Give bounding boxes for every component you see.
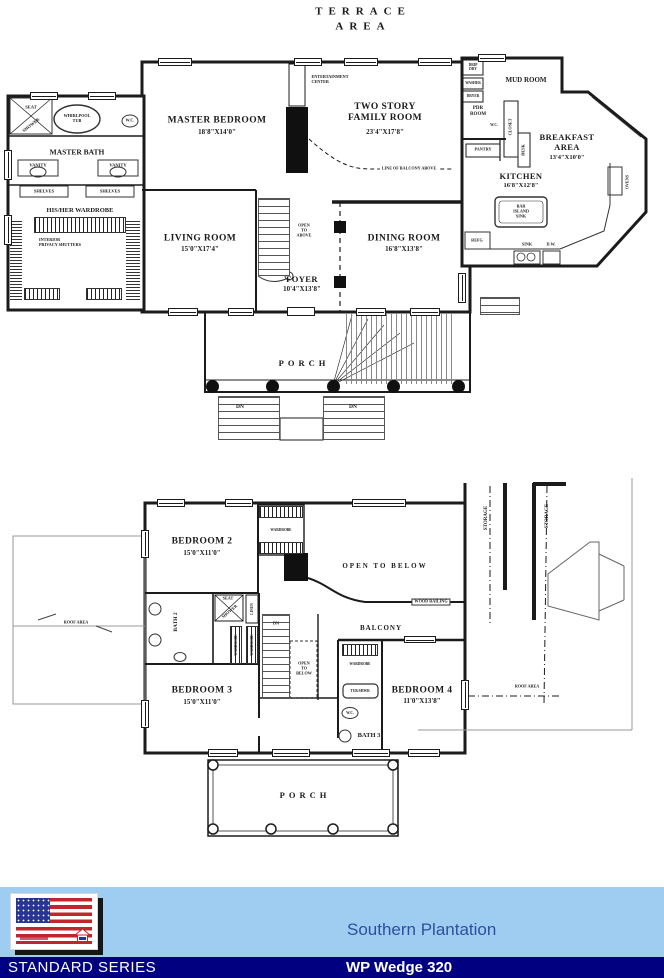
floor-plan-sheet: TERRACE AREA — [0, 0, 664, 978]
label-vanity-right: VANITY — [109, 162, 126, 167]
label-entertainment-center: ENTERTAINMENT CENTER — [311, 75, 348, 85]
window — [410, 308, 440, 316]
label-mud-room: MUD ROOM — [505, 76, 546, 84]
label-drip-dry: DRIP DRY — [469, 63, 478, 71]
window — [272, 749, 310, 757]
second-floor-walls — [0, 468, 664, 878]
label-line-of-balcony: LINE OF BALCONY ABOVE — [380, 167, 438, 172]
label-wc-pdr: W.C. — [490, 123, 498, 127]
staircase-up — [258, 198, 290, 276]
label-closet: CLOSET — [509, 119, 514, 136]
window — [418, 58, 452, 66]
label-master-bedroom: MASTER BEDROOM — [168, 115, 267, 126]
label-tub-shwr: TUB/SHWR — [350, 689, 369, 693]
window — [4, 150, 12, 180]
label-ovens: OVENS — [626, 175, 631, 189]
label-balcony: BALCONY — [360, 624, 402, 632]
balcony-window — [404, 636, 436, 643]
label-bath3: BATH 3 — [358, 732, 381, 740]
label-foyer-dims: 10'4"X13'8" — [283, 285, 321, 293]
series-label: STANDARD SERIES — [8, 959, 156, 976]
window — [352, 749, 390, 757]
label-wood-railing: WOOD RAILING — [411, 599, 450, 606]
side-deck-boards — [346, 314, 456, 384]
window — [228, 308, 254, 316]
label-wardrobe-closet-b: WARDROBE — [250, 634, 254, 655]
label-pdr-room: PDR ROOM — [470, 106, 486, 118]
label-open-to-below: OPEN TO BELOW — [342, 562, 427, 570]
label-seat: SEAT — [25, 104, 36, 109]
staircase-down — [262, 614, 290, 698]
label-breakfast-area: BREAKFAST AREA — [540, 132, 595, 152]
window — [461, 680, 469, 710]
label-roof-area-left: ROOF AREA — [64, 621, 89, 626]
label-bedroom4-wardrobe: WARDROBE — [349, 662, 370, 666]
label-wc-master: W.C. — [126, 119, 135, 124]
label-storage-left: STORAGE — [484, 506, 490, 530]
label-dn-left: DN — [236, 404, 244, 410]
porch-column — [266, 380, 279, 393]
window — [4, 215, 12, 245]
window — [141, 530, 149, 558]
kitchen-stoop-steps — [480, 297, 520, 315]
flag-caption-mark — [20, 937, 48, 940]
label-storage-right: STORAGE — [545, 504, 551, 528]
label-whirlpool-tub: WHIRLPOOL TUB — [64, 114, 91, 124]
window — [478, 54, 506, 62]
label-open-to-below-stair: OPEN TO BELOW — [296, 662, 312, 677]
label-bedroom2: BEDROOM 2 — [172, 536, 233, 547]
chimney — [284, 553, 308, 581]
front-steps-left — [218, 396, 280, 440]
porch-column — [452, 380, 465, 393]
window — [88, 92, 116, 100]
label-wc-bath3: W.C. — [346, 711, 354, 715]
label-bar-island-sink: BAR ISLAND SINK — [513, 205, 529, 220]
label-desk: DESK — [522, 144, 527, 155]
label-linen: LINEN — [250, 603, 254, 614]
label-dishwasher: D.W. — [547, 243, 556, 248]
window — [458, 273, 466, 303]
bedroom4-wardrobe-rod — [342, 644, 378, 656]
label-breakfast-dims: 13'4"X10'0" — [549, 154, 584, 162]
label-bath2: BATH 2 — [173, 612, 179, 631]
wardrobe-rod-top — [259, 506, 303, 518]
window — [157, 499, 185, 507]
front-door — [287, 307, 315, 316]
label-bedroom3: BEDROOM 3 — [172, 685, 233, 696]
label-bedroom4-dims: 11'0"X13'8" — [403, 697, 440, 705]
window — [408, 749, 440, 757]
window — [344, 58, 378, 66]
flag-logo — [10, 893, 98, 950]
label-dn-right: DN — [349, 404, 357, 410]
label-privacy-shutters: INTERIOR PRIVACY SHUTTERS — [39, 238, 81, 248]
us-flag-icon — [16, 898, 92, 944]
label-dining-room: DINING ROOM — [368, 233, 441, 244]
label-sink: SINK — [522, 243, 532, 248]
wardrobe-hanging-rod — [34, 217, 126, 233]
label-pantry: PANTRY — [475, 148, 492, 153]
label-kitchen: KITCHEN — [500, 171, 543, 181]
label-shelves-left: SHELVES — [34, 188, 54, 193]
label-dn2: DN — [273, 622, 279, 627]
flag-canton — [16, 898, 50, 923]
window — [356, 308, 386, 316]
window-seat-left — [24, 288, 60, 300]
wardrobe-rod-bottom — [259, 542, 303, 554]
label-foyer: FOYER — [286, 274, 318, 284]
terrace-area-label-line2: AREA — [329, 21, 390, 34]
footer-title-bar: STANDARD SERIES WP Wedge 320 — [0, 957, 664, 978]
label-living-room-dims: 15'0"X17'4" — [181, 245, 219, 253]
label-shelves-right: SHELVES — [100, 188, 120, 193]
label-porch: PORCH — [275, 358, 330, 368]
label-living-room: LIVING ROOM — [164, 233, 236, 244]
label-bedroom2-dims: 15'0"X11'0" — [183, 549, 220, 557]
window — [30, 92, 58, 100]
first-floor-plan: MASTER BEDROOM 18'8"X14'0" TWO STORY FAM… — [0, 35, 664, 465]
label-family-room: TWO STORY FAMILY ROOM — [348, 102, 422, 124]
label-vanity-left: VANITY — [29, 162, 46, 167]
window — [141, 700, 149, 728]
window — [352, 499, 406, 507]
window-seat-right — [86, 288, 122, 300]
second-floor-plan: BEDROOM 2 15'0"X11'0" WARDROBE OPEN TO B… — [0, 468, 664, 878]
label-washer: WASHER — [465, 81, 481, 85]
label-seat2: SEAT — [223, 597, 234, 602]
label-bedroom3-dims: 15'0"X11'0" — [183, 698, 220, 706]
window — [168, 308, 198, 316]
label-bedroom4: BEDROOM 4 — [392, 685, 453, 696]
label-his-her-wardrobe: HIS/HER WARDROBE — [47, 207, 114, 215]
porch-column — [206, 380, 219, 393]
label-refrigerator: REFG — [471, 239, 483, 244]
label-roof-area-right: ROOF AREA — [515, 685, 540, 690]
wardrobe-shelving-right — [126, 220, 140, 300]
window — [158, 58, 192, 66]
window — [225, 499, 253, 507]
front-steps-right — [323, 396, 385, 440]
terrace-door — [294, 58, 322, 66]
plan-name: Southern Plantation — [347, 920, 496, 940]
label-wardrobe-closet-a: WARDROBE — [234, 634, 238, 655]
footer-band: Southern Plantation — [0, 887, 664, 957]
label-master-bath: MASTER BATH — [50, 149, 105, 158]
house-icon — [75, 929, 90, 942]
label-master-bedroom-dims: 18'8"X14'0" — [198, 128, 236, 136]
porch-column — [387, 380, 400, 393]
label-kitchen-dims: 16'8"X12'8" — [503, 182, 538, 190]
label-dryer: DRYER — [467, 94, 480, 98]
label-dining-room-dims: 16'8"X13'8" — [385, 245, 423, 253]
label-open-to-above: OPEN TO ABOVE — [297, 224, 312, 239]
label-family-room-dims: 23'4"X17'8" — [366, 128, 404, 136]
porch-column — [327, 380, 340, 393]
label-wardrobe-top: WARDROBE — [270, 528, 291, 532]
label-porch2: PORCH — [276, 790, 331, 800]
window — [208, 749, 238, 757]
terrace-area-label-line1: TERRACE — [309, 6, 411, 19]
model-label: WP Wedge 320 — [346, 959, 452, 976]
